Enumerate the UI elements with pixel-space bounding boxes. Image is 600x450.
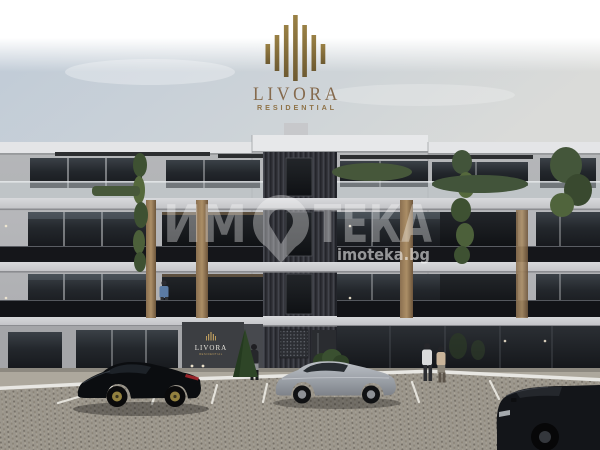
pergola-beam <box>55 152 210 156</box>
rim <box>539 431 551 443</box>
glass-plant-reflection <box>449 333 467 359</box>
window-band <box>536 212 600 248</box>
brand-name: LIVORA <box>253 84 341 105</box>
stairwell-window <box>286 274 312 314</box>
entrance-sign-tagline: RESIDENTIAL <box>199 352 223 356</box>
hub <box>115 395 118 398</box>
render-image: LIVORA RESIDENTIAL <box>0 0 600 450</box>
car-shadow <box>273 397 401 409</box>
logo-bar <box>293 15 298 81</box>
logo-bar <box>275 35 280 71</box>
railing-top <box>337 300 600 301</box>
terrace-planter <box>332 163 412 181</box>
logo-bar <box>302 25 307 77</box>
cloud <box>65 59 235 85</box>
logo-bar <box>284 25 289 77</box>
glass-reflection <box>28 212 148 219</box>
mailbox-panel <box>280 330 308 358</box>
railing-top <box>0 300 263 301</box>
brand-tagline: RESIDENTIAL <box>257 103 337 112</box>
glass-reflection <box>28 274 148 280</box>
ground-storefront <box>337 326 600 372</box>
terrace-planter <box>92 186 140 196</box>
logo-bar <box>321 44 326 64</box>
slab-shadow <box>0 271 600 273</box>
watermark-text-left: ИМ <box>163 195 247 255</box>
logo-bar <box>312 35 317 71</box>
glass-plant-reflection <box>471 340 485 360</box>
side-mirror <box>511 398 517 402</box>
roof-stair-block <box>284 123 308 137</box>
entrance-sign-brand: LIVORA <box>195 344 227 352</box>
car-suv <box>496 385 600 450</box>
wood-pier <box>516 210 528 318</box>
rim <box>298 390 306 398</box>
watermark-pin-icon <box>248 190 314 268</box>
balcony-recess <box>440 212 518 248</box>
hub <box>173 395 176 398</box>
roof-parapet-center <box>252 135 428 151</box>
floor-slab <box>0 316 600 326</box>
balcony-railing <box>0 300 263 317</box>
pergola-beam <box>218 154 263 158</box>
car-shadow <box>73 402 209 416</box>
scene-svg: LIVORA RESIDENTIAL <box>0 0 600 450</box>
roof-parapet-left <box>0 142 263 153</box>
rim <box>367 390 375 398</box>
watermark-site-url: imoteka.bg <box>337 245 430 264</box>
pergola-beam <box>340 155 533 159</box>
cloud <box>325 84 515 106</box>
logo-bar <box>266 44 271 64</box>
balcony-railing <box>337 300 600 317</box>
recess-ceiling <box>162 274 263 277</box>
terrace-planter <box>432 175 528 193</box>
ground-window <box>8 332 62 370</box>
